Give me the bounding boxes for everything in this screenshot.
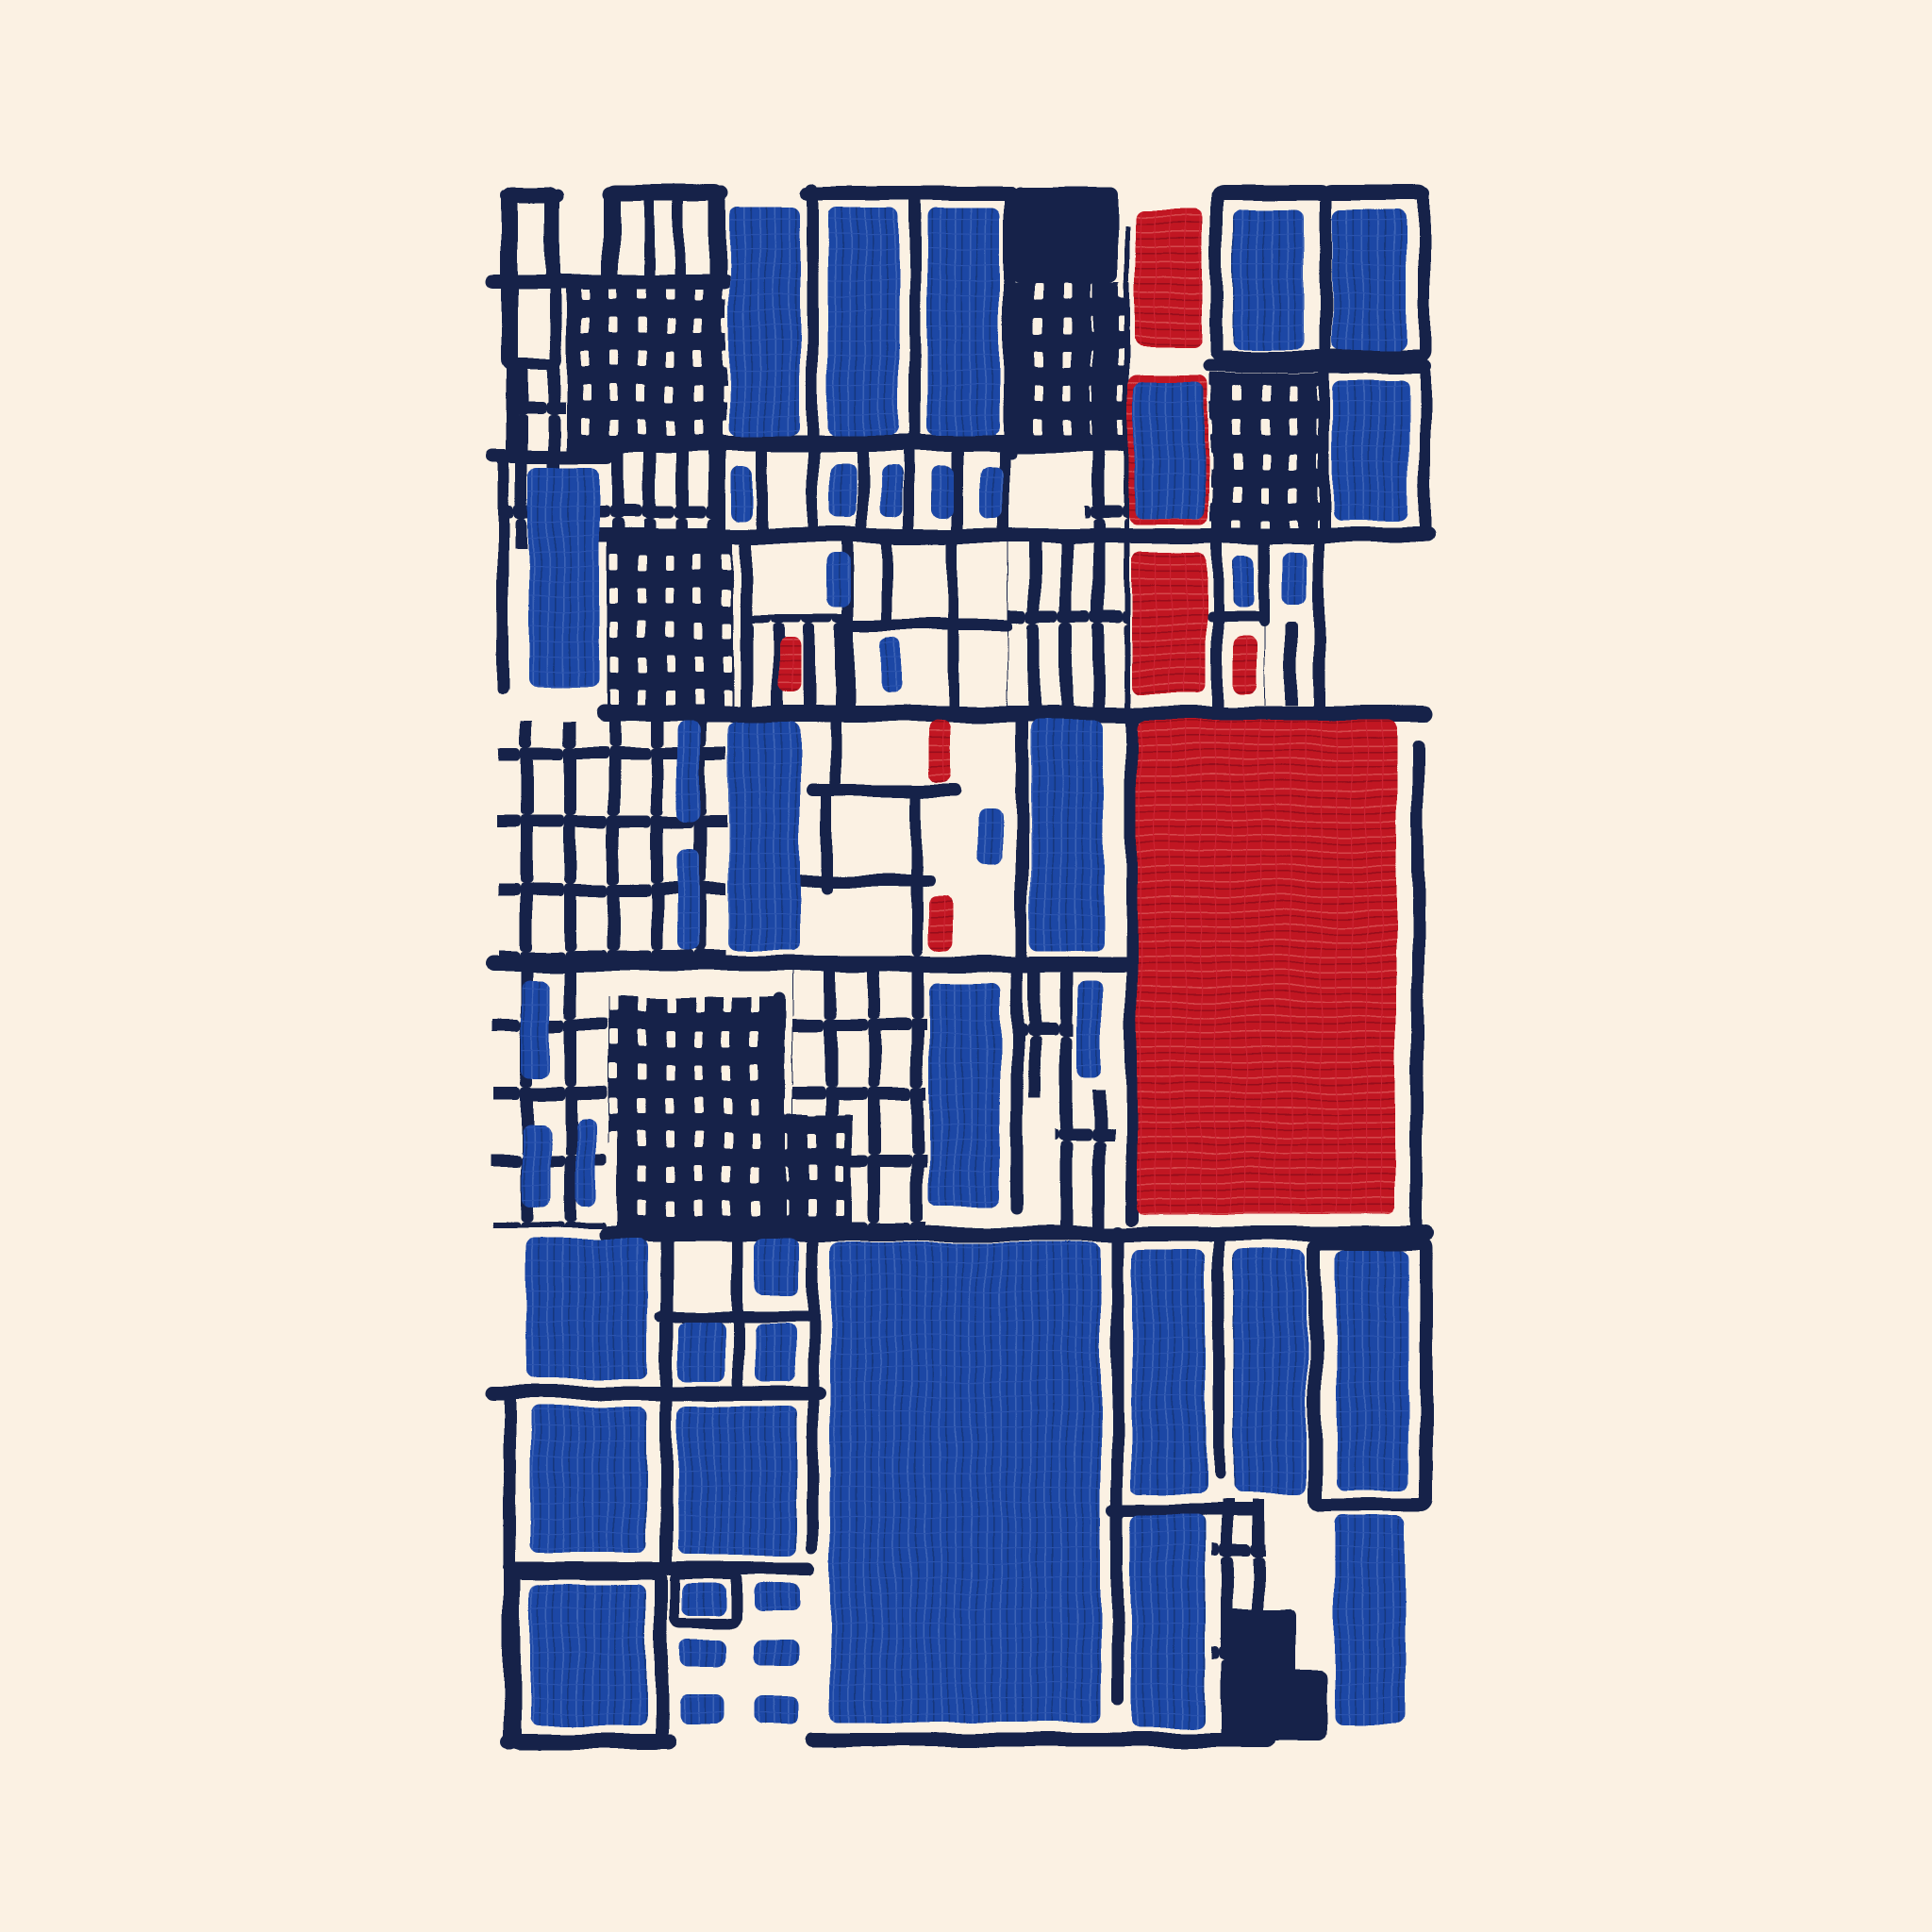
blue-paint-block	[880, 637, 901, 693]
blue-paint-block	[929, 983, 1000, 1206]
blue-paint-block	[1135, 382, 1205, 519]
blue-paint-block	[522, 981, 550, 1078]
blue-paint-block	[677, 1406, 797, 1555]
abstract-composition-artwork	[0, 0, 1932, 1932]
blue-paint-block	[827, 208, 899, 436]
stripes-grid-block	[1008, 536, 1130, 714]
blue-paint-block	[830, 1242, 1101, 1722]
navy-block	[1264, 1670, 1326, 1740]
blue-paint-block	[978, 808, 1003, 865]
blue-paint-block	[927, 208, 1000, 436]
red-paint-block	[1132, 552, 1206, 693]
blue-paint-block	[1233, 555, 1255, 608]
blue-paint-block	[1233, 209, 1304, 349]
blue-paint-block	[1233, 1250, 1307, 1493]
stripes-grid-block	[594, 453, 717, 536]
blue-paint-block	[677, 1322, 724, 1382]
blue-paint-block	[932, 466, 953, 518]
blue-paint-block	[677, 722, 701, 821]
blue-paint-block	[828, 554, 852, 607]
waffle-grid-block	[607, 536, 733, 715]
blue-paint-block	[755, 1239, 800, 1295]
blue-paint-block	[679, 1696, 724, 1724]
blue-paint-block	[1030, 720, 1104, 951]
stripes-grid-block	[1019, 972, 1074, 1096]
blue-paint-block	[528, 467, 599, 689]
blue-paint-block	[755, 1696, 800, 1724]
blue-paint-block	[530, 1585, 646, 1726]
blue-paint-block	[731, 467, 753, 521]
blue-paint-block	[1333, 209, 1406, 351]
blue-paint-block	[683, 1583, 726, 1615]
blue-paint-block	[530, 1407, 646, 1552]
waffle-grid-block	[618, 1113, 852, 1228]
stripes-grid-block	[1055, 1090, 1113, 1228]
waffle-grid-block	[566, 279, 726, 453]
red-paint-block	[778, 637, 802, 693]
red-paint-block	[927, 896, 953, 951]
red-paint-block	[1135, 210, 1203, 347]
blue-paint-block	[677, 850, 700, 951]
blue-paint-block	[526, 1239, 648, 1379]
red-paint-block	[1233, 637, 1257, 693]
blue-paint-block	[753, 1640, 798, 1666]
blue-paint-block	[729, 208, 800, 436]
blue-paint-block	[979, 466, 1002, 518]
blue-paint-block	[880, 465, 903, 517]
canvas-background	[0, 0, 1932, 1932]
navy-block	[1011, 187, 1118, 283]
blue-paint-block	[679, 1640, 724, 1668]
blue-paint-block	[1131, 1514, 1205, 1728]
blue-paint-block	[728, 722, 800, 951]
blue-paint-block	[755, 1324, 795, 1382]
blue-paint-block	[1333, 380, 1408, 522]
blue-paint-block	[1132, 1250, 1206, 1493]
blue-paint-block	[1077, 981, 1102, 1077]
red-paint-block	[929, 720, 951, 783]
blue-paint-block	[753, 1583, 800, 1611]
blue-paint-block	[522, 1123, 550, 1207]
blue-paint-block	[830, 464, 856, 519]
blue-paint-block	[1281, 552, 1307, 606]
blue-paint-block	[575, 1118, 596, 1207]
blue-paint-block	[1334, 1515, 1406, 1724]
red-paint-block	[1137, 720, 1396, 1214]
blue-paint-block	[1336, 1250, 1408, 1491]
waffle-grid-block	[1210, 373, 1324, 533]
